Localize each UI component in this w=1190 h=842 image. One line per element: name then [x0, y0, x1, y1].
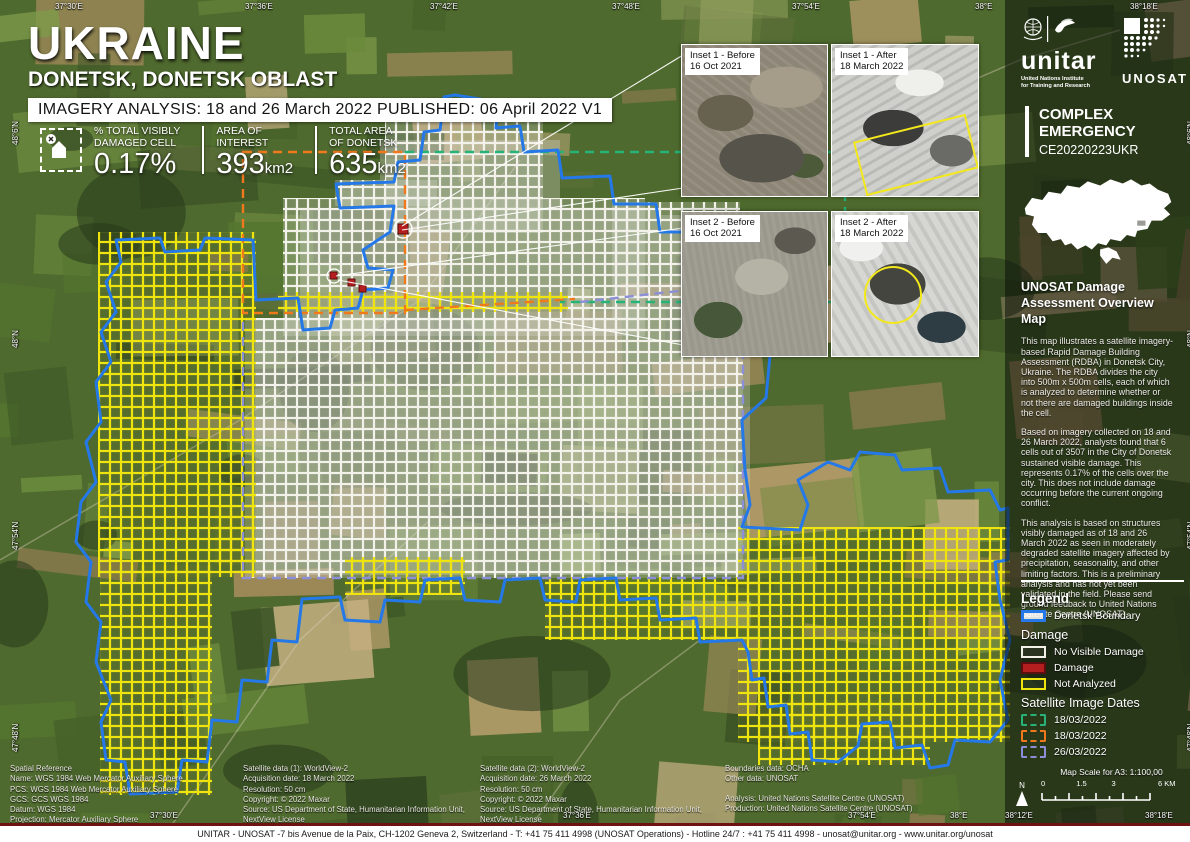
sidebar: unitar United Nations Institutefor Train… — [1005, 0, 1190, 826]
description-paragraph: This map illustrates a satellite imagery… — [1021, 336, 1174, 418]
credit-line: Source: US Department of State, Humanita… — [243, 805, 478, 815]
donetsk-marker — [1137, 221, 1145, 226]
credit-line — [725, 785, 995, 794]
page-subtitle: DONETSK, DONETSK OBLAST — [28, 68, 612, 92]
satellite-data-1-block: Satellite data (1): WorldView-2Acquisiti… — [243, 764, 478, 826]
credit-line: Resolution: 50 cm — [480, 785, 715, 795]
emergency-line2: EMERGENCY — [1039, 123, 1190, 140]
sources-block: Boundaries data: OCHAOther data: UNOSATA… — [725, 764, 995, 814]
date-orange-swatch — [1021, 730, 1046, 742]
legend-label: Damage — [1054, 662, 1094, 674]
stat-damaged-value: 0.17% — [94, 149, 180, 181]
stat-aoi-value: 393 — [216, 148, 264, 180]
house-icon — [52, 141, 66, 158]
north-arrow-icon: N — [1013, 782, 1031, 806]
unitar-logo: unitar United Nations Institutefor Train… — [1021, 16, 1112, 90]
credit-line: Boundaries data: OCHA — [725, 764, 995, 774]
inset-2-before-label: Inset 2 - Before — [690, 217, 755, 228]
legend-section-dates: Satellite Image Dates — [1021, 696, 1186, 710]
stat-total-label2: OF DONETSK — [329, 137, 397, 149]
inset-1-before-label: Inset 1 - Before — [690, 50, 755, 61]
legend-label: 18/03/2022 — [1054, 730, 1107, 742]
map-canvas: UKRAINE DONETSK, DONETSK OBLAST IMAGERY … — [0, 0, 1190, 842]
footer: UNITAR - UNOSAT -7 bis Avenue de la Paix… — [0, 826, 1190, 842]
credit-line: Acquisition date: 26 March 2022 — [480, 774, 715, 784]
not-analyzed-swatch — [1021, 678, 1046, 690]
legend-label: No Visible Damage — [1054, 646, 1144, 658]
unosat-logo: UNOSAT — [1122, 16, 1184, 86]
inset-2-before: Inset 2 - Before16 Oct 2021 — [681, 211, 828, 357]
analysis-bar: IMAGERY ANALYSIS: 18 and 26 March 2022 P… — [28, 98, 612, 122]
boundary-swatch — [1021, 610, 1046, 622]
credit-line: Copyright: © 2022 Maxar — [243, 795, 478, 805]
damage-highlight-rect — [853, 114, 979, 196]
legend: Legend Donetsk Boundary Damage No Visibl… — [1021, 591, 1186, 762]
stat-damaged: % TOTAL VISIBLYDAMAGED CELL 0.17% — [94, 126, 180, 181]
legend-item-not-analyzed: Not Analyzed — [1021, 678, 1186, 690]
credit-line: Datum: WGS 1984 — [10, 805, 245, 815]
emergency-line1: COMPLEX — [1039, 106, 1190, 123]
date-purple-swatch — [1021, 746, 1046, 758]
inset-1-after-label: Inset 1 - After — [840, 50, 897, 61]
scale-tick: 3 — [1112, 779, 1116, 788]
damage-swatch — [1021, 662, 1046, 674]
legend-title: Legend — [1021, 591, 1186, 606]
emergency-code: CE20220223UKR — [1039, 143, 1190, 157]
scale-tick-labels: 0 1.5 3 6 KM — [1041, 779, 1182, 788]
scale-bar: Map Scale for A3: 1:100,00 0 1.5 3 6 KM — [1041, 767, 1182, 806]
stats-bar: % TOTAL VISIBLYDAMAGED CELL 0.17% AREA O… — [40, 126, 416, 181]
credit-line: Satellite data (2): WorldView-2 — [480, 764, 715, 774]
unitar-wordmark: unitar — [1021, 49, 1112, 74]
legend-item-date-purple: 26/03/2022 — [1021, 746, 1186, 758]
legend-label: Donetsk Boundary — [1054, 610, 1140, 622]
legend-item-boundary: Donetsk Boundary — [1021, 610, 1186, 622]
stat-damaged-label2: DAMAGED CELL — [94, 137, 176, 149]
ukraine-silhouette-icon — [1019, 169, 1175, 267]
credit-line: Analysis: United Nations Satellite Centr… — [725, 794, 995, 804]
credit-line: GCS: GCS WGS 1984 — [10, 795, 245, 805]
scale-area: N Map Scale for A3: 1:100,00 0 1.5 3 6 K… — [1013, 767, 1182, 806]
credit-line: Copyright: © 2022 Maxar — [480, 795, 715, 805]
page-title: UKRAINE — [28, 20, 612, 66]
stat-aoi-label1: AREA OF — [216, 125, 262, 137]
unitar-tagline1: United Nations Institute — [1021, 76, 1084, 82]
inset-2-after-date: 18 March 2022 — [840, 228, 903, 239]
credit-line: PCS: WGS 1984 Web Mercator Auxiliary Sph… — [10, 785, 245, 795]
scale-tick: 6 KM — [1158, 779, 1176, 788]
stat-total-value: 635 — [329, 148, 377, 180]
divider — [315, 126, 317, 174]
legend-item-date-green: 18/03/2022 — [1021, 714, 1186, 726]
emergency-block: COMPLEX EMERGENCY CE20220223UKR — [1025, 106, 1190, 158]
inset-2-after-label: Inset 2 - After — [840, 217, 897, 228]
credit-line: Acquisition date: 18 March 2022 — [243, 774, 478, 784]
stat-damaged-label1: % TOTAL VISIBLY — [94, 125, 180, 137]
inset-1-before-date: 16 Oct 2021 — [690, 61, 742, 72]
inset-panels: Inset 1 - Before16 Oct 2021 Inset 1 - Af… — [681, 44, 979, 358]
damage-cell — [359, 285, 366, 292]
credit-line: Satellite data (1): WorldView-2 — [243, 764, 478, 774]
legend-item-date-orange: 18/03/2022 — [1021, 730, 1186, 742]
damage-highlight-circle — [864, 266, 922, 324]
sidebar-map-title-line2: Assessment Overview Map — [1021, 296, 1154, 326]
credit-line: Spatial Reference — [10, 764, 245, 774]
no-visible-damage-swatch — [1021, 646, 1046, 658]
credit-line: Source: US Department of State, Humanita… — [480, 805, 715, 815]
legend-item-no-visible-damage: No Visible Damage — [1021, 646, 1186, 658]
un-emblem-and-dove-icon — [1021, 16, 1077, 42]
inset-2-after: Inset 2 - After18 March 2022 — [831, 211, 979, 357]
date-green-swatch — [1021, 714, 1046, 726]
stat-aoi-label2: INTEREST — [216, 137, 268, 149]
unosat-wordmark: UNOSAT — [1122, 71, 1184, 86]
spatial-reference-block: Spatial ReferenceName: WGS 1984 Web Merc… — [10, 764, 245, 826]
divider — [202, 126, 204, 174]
stat-total-unit: km2 — [378, 160, 406, 177]
stat-aoi-unit: km2 — [265, 160, 293, 177]
title-block: UKRAINE DONETSK, DONETSK OBLAST IMAGERY … — [28, 20, 612, 122]
legend-label: 26/03/2022 — [1054, 746, 1107, 758]
legend-label: Not Analyzed — [1054, 678, 1116, 690]
credit-line: Other data: UNOSAT — [725, 774, 995, 784]
credit-line: Production: United Nations Satellite Cen… — [725, 804, 995, 814]
legend-label: 18/03/2022 — [1054, 714, 1107, 726]
damaged-house-icon — [40, 128, 82, 172]
inset-1-before: Inset 1 - Before16 Oct 2021 — [681, 44, 828, 197]
stat-total-label1: TOTAL AREA — [329, 125, 392, 137]
ukraine-locator — [1019, 169, 1180, 272]
credits: Spatial ReferenceName: WGS 1984 Web Merc… — [0, 764, 1000, 822]
credit-line: Name: WGS 1984 Web Mercator Auxiliary Sp… — [10, 774, 245, 784]
sidebar-map-title: UNOSAT Damage Assessment Overview Map — [1021, 280, 1174, 327]
findings-paragraph: Based on imagery collected on 18 and 26 … — [1021, 427, 1174, 509]
stat-total: TOTAL AREAOF DONETSK 635km2 — [329, 126, 406, 181]
scale-ruler-icon — [1041, 791, 1151, 801]
scale-title: Map Scale for A3: 1:100,00 — [1041, 767, 1182, 777]
inset-1-after-date: 18 March 2022 — [840, 61, 903, 72]
divider — [1021, 580, 1184, 582]
satellite-data-2-block: Satellite data (2): WorldView-2Acquisiti… — [480, 764, 715, 826]
logos: unitar United Nations Institutefor Train… — [1005, 0, 1190, 90]
legend-section-damage: Damage — [1021, 628, 1186, 642]
credit-line: Resolution: 50 cm — [243, 785, 478, 795]
stat-aoi: AREA OFINTEREST 393km2 — [216, 126, 293, 181]
inset-2-before-date: 16 Oct 2021 — [690, 228, 742, 239]
scale-tick: 0 — [1041, 779, 1045, 788]
inset-1-after: Inset 1 - After18 March 2022 — [831, 44, 979, 197]
north-label: N — [1013, 782, 1031, 790]
legend-item-damage: Damage — [1021, 662, 1186, 674]
scale-tick: 1.5 — [1076, 779, 1086, 788]
sidebar-map-title-line1: UNOSAT Damage — [1021, 280, 1125, 294]
unitar-tagline2: for Training and Research — [1021, 83, 1090, 89]
unosat-dots-icon — [1122, 16, 1170, 62]
